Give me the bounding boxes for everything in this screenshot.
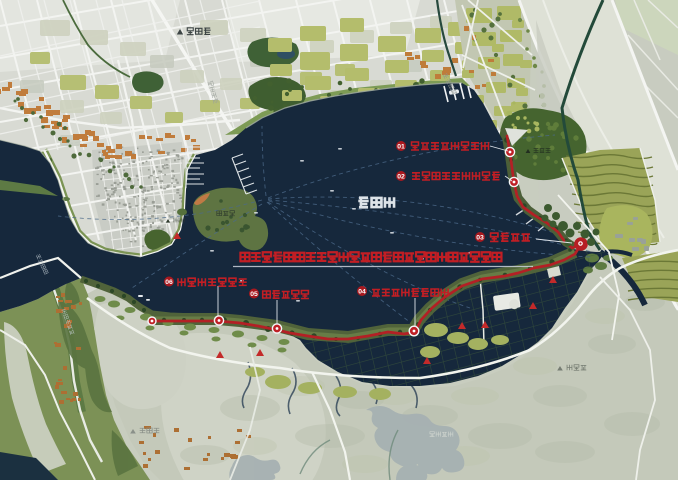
- svg-text:01: 01: [397, 143, 405, 150]
- svg-text:04: 04: [358, 288, 366, 295]
- svg-text:06: 06: [165, 279, 173, 286]
- svg-text:03: 03: [476, 234, 484, 241]
- svg-text:02: 02: [397, 173, 405, 180]
- svg-text:05: 05: [250, 291, 258, 298]
